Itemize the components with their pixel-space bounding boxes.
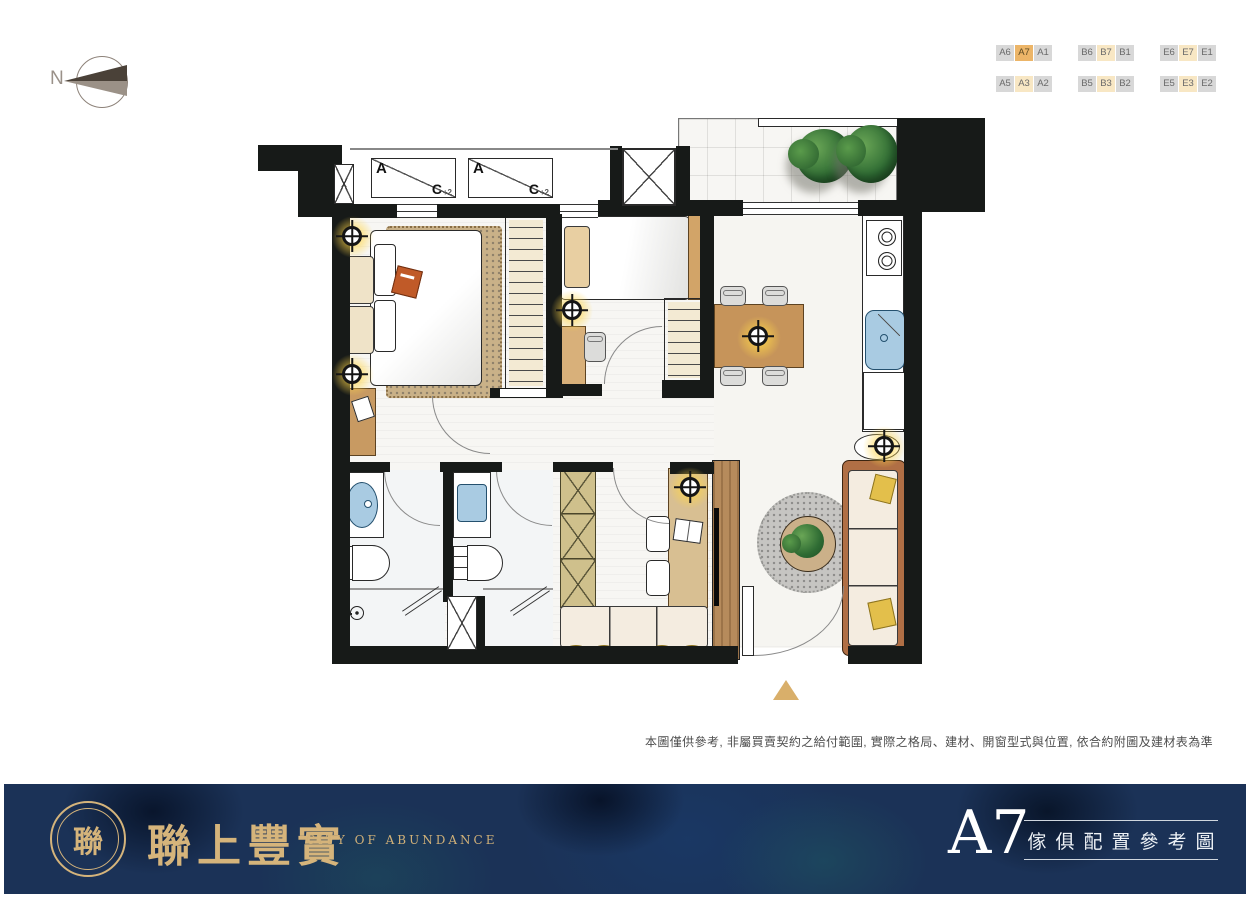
ac-unit-2-label-a: A [473, 160, 484, 177]
entry-marker-triangle [773, 680, 799, 700]
ac-unit-2: A C +2 [468, 158, 553, 198]
coffee-table-plant [790, 524, 824, 558]
bedroom2-chair [584, 332, 606, 362]
kitchen-faucet [878, 314, 900, 336]
floor-plan: X A C +2 A C +2 [0, 0, 1250, 898]
brand-name-english: CITY OF ABUNDANCE [306, 833, 497, 847]
balcony-sliding-door [743, 202, 858, 215]
ac-unit-1-label-sub: +2 [443, 188, 452, 197]
bath1-shower-divider [338, 588, 443, 590]
ac-unit-2-label-c: C [529, 181, 539, 197]
lamp-bedroom2 [562, 300, 582, 320]
wall-bottom-left [332, 646, 738, 664]
wall-mass-topright [897, 118, 985, 212]
plan-caption: 傢俱配置參考圖 [1024, 820, 1218, 860]
dining-chair-4 [762, 366, 788, 386]
ac-ledge-line [350, 148, 618, 150]
brand-logo-icon: 聯 [50, 801, 126, 877]
ac-unit-1: A C +2 [371, 158, 456, 198]
kitchen-fridge-cabinet [863, 372, 905, 430]
lamp-living [874, 436, 894, 456]
bath1-drain [364, 500, 372, 508]
pipe-shaft-topleft: X [334, 164, 354, 204]
master-wardrobe [505, 216, 547, 390]
wall-bedroom2-dining [700, 214, 714, 396]
dining-chair-2 [762, 286, 788, 306]
wall-corridor-3 [553, 462, 613, 472]
bath1-basin [346, 482, 378, 528]
bedroom2-pillow [564, 226, 590, 288]
disclaimer-text: 本圖僅供參考, 非屬買賣契約之給付範圍, 實際之格局、建材、開窗型式與位置, 依… [645, 733, 1213, 750]
bath2-basin [457, 484, 487, 522]
balcony-plant-2 [844, 125, 898, 183]
lamp-dining [748, 326, 768, 346]
elevator-shaft [622, 148, 676, 206]
stove-burner-1 [878, 228, 896, 246]
wall-shaft2-right [477, 596, 485, 652]
master-nightstand-1 [346, 256, 374, 304]
dining-chair-1 [720, 286, 746, 306]
dining-chair-3 [720, 366, 746, 386]
lamp-master-2 [342, 364, 362, 384]
wall-master-south-inset [500, 389, 546, 397]
study-chair-2 [646, 560, 670, 596]
study-bench [560, 606, 708, 648]
brand-logo-glyph: 聯 [52, 803, 124, 875]
study-storage-shelf [560, 466, 596, 608]
wall-shaft-right [676, 146, 690, 208]
tv-screen [714, 508, 719, 606]
master-bed-pillow-2 [374, 300, 396, 352]
master-nightstand-2 [346, 306, 374, 354]
ac-unit-1-label-a: A [376, 160, 387, 177]
wall-top-2 [437, 204, 560, 218]
unit-type-label: A7 [948, 798, 1030, 868]
wall-bedroom2-south-2 [662, 380, 714, 398]
plan-caption-text: 傢俱配置參考圖 [1019, 827, 1224, 854]
window-master [397, 204, 437, 218]
wall-right [904, 204, 922, 664]
wall-left [332, 212, 350, 664]
wall-corridor-1 [332, 462, 390, 472]
brochure-page: { "compass": { "label": "N" }, "unit_sel… [0, 0, 1250, 898]
ac-unit-1-label-c: C [432, 181, 442, 197]
bath2-toilet-bowl [467, 545, 503, 581]
wall-shaft-left [610, 146, 622, 208]
shaft-label: X [341, 179, 347, 189]
ac-unit-2-label-sub: +2 [540, 188, 549, 197]
study-open-book [673, 518, 704, 544]
entry-door-leaf [742, 586, 754, 656]
window-bedroom2 [560, 204, 598, 218]
stove-burner-2 [878, 252, 896, 270]
bath1-shower-head-icon [350, 606, 364, 620]
lamp-master-1 [342, 226, 362, 246]
lamp-study [680, 477, 700, 497]
wall-bottom-right [848, 646, 922, 664]
wall-bath-divider [443, 462, 453, 602]
bath1-toilet-bowl [352, 545, 390, 581]
bath-pipe-shaft [447, 596, 477, 650]
wall-bedroom2-south-1 [555, 384, 602, 396]
footer-band: 聯 聯上豐實 CITY OF ABUNDANCE A7 傢俱配置參考圖 [4, 784, 1246, 894]
